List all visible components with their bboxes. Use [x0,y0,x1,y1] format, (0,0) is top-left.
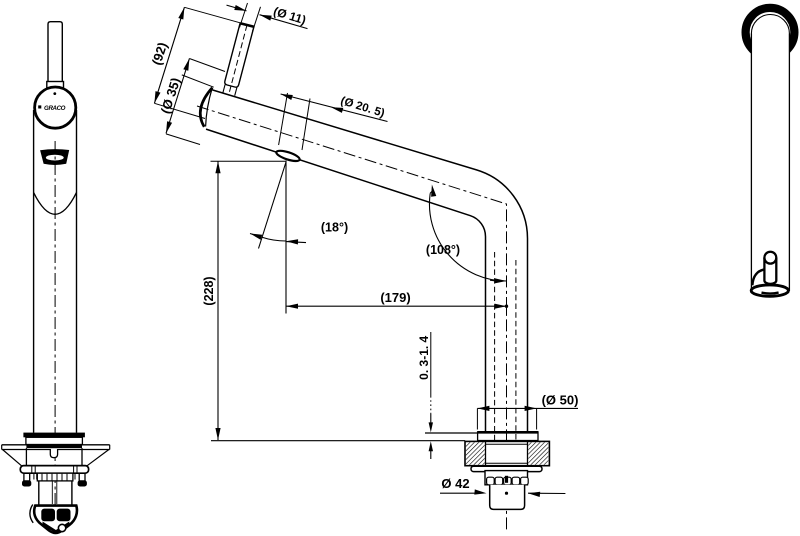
svg-text:(228): (228) [202,276,216,305]
svg-text:Ø 42: Ø 42 [441,476,469,491]
svg-text:(Ø 20. 5): (Ø 20. 5) [339,95,386,120]
svg-text:GRACO: GRACO [44,105,66,112]
svg-text:(Ø 50): (Ø 50) [542,393,579,408]
svg-text:(18°): (18°) [321,220,348,234]
svg-text:(179): (179) [380,290,410,305]
svg-text:0. 3-1. 4: 0. 3-1. 4 [417,335,431,379]
svg-text:(108°): (108°) [426,243,460,257]
